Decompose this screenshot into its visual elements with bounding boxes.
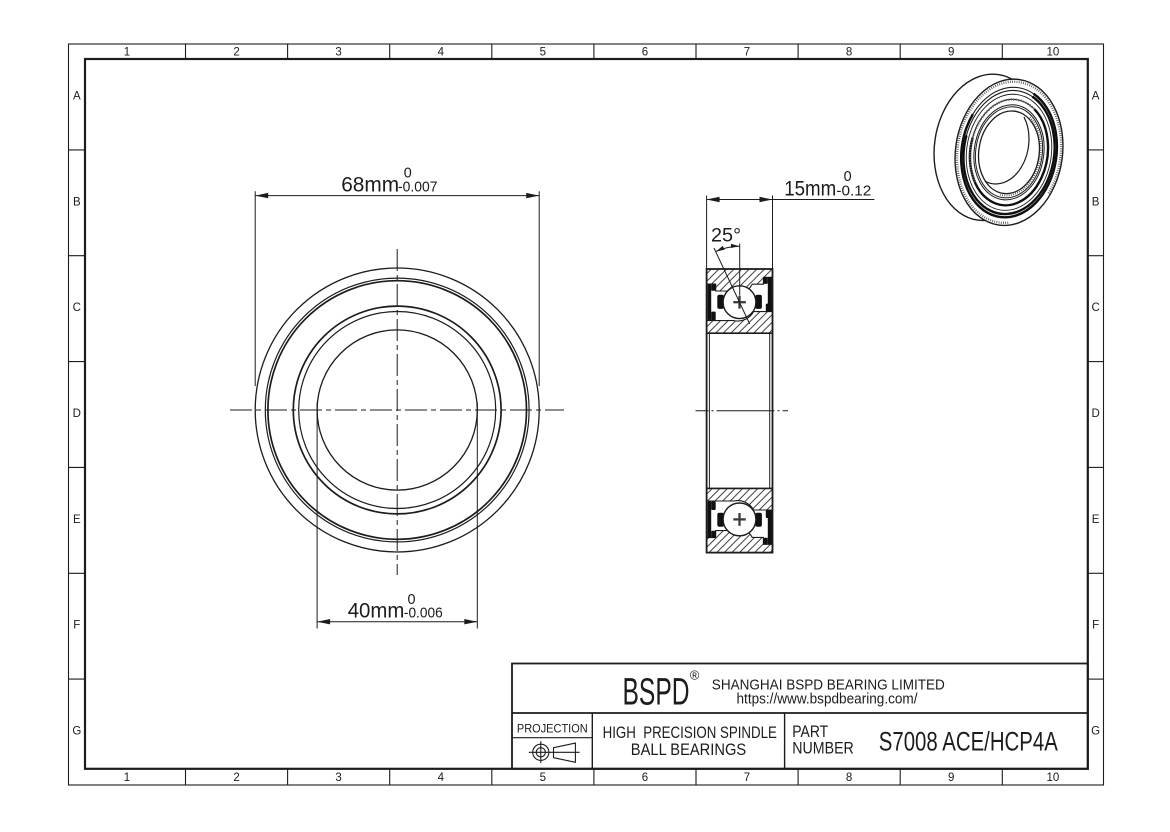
svg-text:8: 8	[846, 772, 852, 784]
svg-text:F: F	[73, 620, 80, 632]
svg-text:-0.006: -0.006	[404, 604, 443, 621]
svg-text:D: D	[1091, 408, 1099, 420]
svg-text:BSPD: BSPD	[623, 672, 690, 714]
svg-text:7: 7	[744, 47, 750, 59]
svg-text:68mm: 68mm	[341, 174, 399, 197]
svg-text:4: 4	[438, 47, 445, 59]
svg-text:E: E	[1092, 514, 1100, 526]
svg-text:PROJECTION: PROJECTION	[517, 723, 588, 735]
svg-text:NUMBER: NUMBER	[792, 740, 854, 758]
svg-text:BALL BEARINGS: BALL BEARINGS	[631, 741, 746, 759]
svg-text:G: G	[72, 726, 81, 738]
svg-text:6: 6	[642, 772, 648, 784]
svg-text:B: B	[73, 196, 81, 208]
svg-text:3: 3	[335, 47, 341, 59]
svg-text:D: D	[73, 408, 81, 420]
svg-text:-0.007: -0.007	[398, 179, 438, 196]
svg-text:6: 6	[642, 47, 648, 59]
svg-text:15mm: 15mm	[784, 177, 836, 200]
svg-text:HIGH PRECISION SPINDLE: HIGH PRECISION SPINDLE	[603, 724, 777, 742]
svg-text:4: 4	[438, 772, 445, 784]
svg-text:-0.12: -0.12	[836, 182, 871, 199]
svg-text:G: G	[1091, 726, 1100, 738]
svg-text:5: 5	[540, 47, 546, 59]
svg-text:7: 7	[744, 772, 750, 784]
svg-text:2: 2	[233, 47, 239, 59]
svg-text:1: 1	[124, 772, 130, 784]
svg-text:9: 9	[948, 772, 954, 784]
svg-text:2: 2	[233, 772, 239, 784]
svg-text:E: E	[73, 514, 81, 526]
svg-text:9: 9	[948, 47, 954, 59]
svg-text:PART: PART	[792, 723, 828, 741]
svg-text:10: 10	[1047, 772, 1060, 784]
svg-text:®: ®	[690, 668, 700, 683]
svg-text:B: B	[1092, 196, 1100, 208]
svg-text:F: F	[1092, 620, 1099, 632]
svg-text:40mm: 40mm	[348, 599, 405, 622]
svg-text:10: 10	[1047, 47, 1060, 59]
svg-text:S7008 ACE/HCP4A: S7008 ACE/HCP4A	[879, 726, 1058, 756]
svg-text:5: 5	[540, 772, 546, 784]
svg-text:3: 3	[335, 772, 341, 784]
svg-text:C: C	[1091, 302, 1099, 314]
svg-text:25°: 25°	[711, 225, 741, 246]
svg-text:C: C	[73, 302, 81, 314]
svg-text:A: A	[73, 90, 81, 102]
svg-text:https://www.bspdbearing.com/: https://www.bspdbearing.com/	[737, 691, 919, 708]
svg-text:8: 8	[846, 47, 852, 59]
svg-text:1: 1	[124, 47, 130, 59]
svg-text:A: A	[1092, 90, 1100, 102]
